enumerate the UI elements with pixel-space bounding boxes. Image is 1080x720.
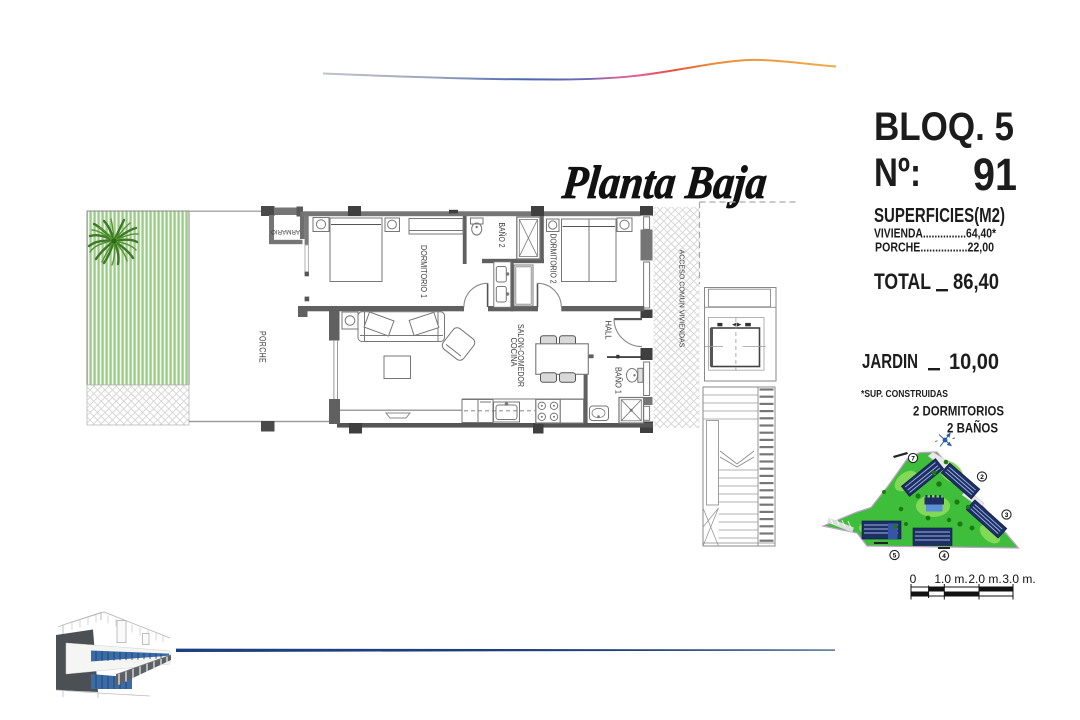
svg-text:ARMARIO: ARMARIO: [271, 228, 300, 235]
svg-text:BAÑO 2: BAÑO 2: [497, 223, 506, 248]
svg-text:COCINA: COCINA: [509, 338, 518, 368]
svg-text:2 DORMITORIOS: 2 DORMITORIOS: [913, 403, 1004, 419]
svg-text:91: 91: [973, 149, 1017, 200]
svg-text:5: 5: [893, 552, 897, 559]
svg-text:PORCHE: PORCHE: [258, 331, 268, 363]
svg-text:SUPERFICIES(M2): SUPERFICIES(M2): [874, 205, 1005, 227]
svg-text:0: 0: [910, 572, 917, 586]
svg-text:4: 4: [942, 553, 946, 560]
svg-text:2 BAÑOS: 2 BAÑOS: [947, 419, 998, 436]
svg-text:VIVIENDA...............64,40*: VIVIENDA...............64,40*: [874, 226, 997, 241]
svg-text:2.0 m.: 2.0 m.: [968, 572, 1001, 586]
svg-text:Nº:: Nº:: [874, 151, 921, 195]
svg-text:2: 2: [980, 474, 984, 481]
svg-text:3: 3: [1005, 512, 1009, 519]
svg-text:7: 7: [911, 455, 915, 462]
svg-text:JARDIN: JARDIN: [862, 351, 918, 373]
svg-text:HALL: HALL: [604, 321, 613, 341]
svg-text:BAÑO 1: BAÑO 1: [614, 367, 624, 394]
svg-text:PORCHE................22,00: PORCHE................22,00: [875, 240, 994, 255]
svg-text:TOTAL: TOTAL: [874, 269, 931, 294]
svg-text:86,40: 86,40: [953, 269, 999, 294]
svg-text:Planta Baja: Planta Baja: [559, 157, 769, 209]
svg-text:DORMITORIO 2: DORMITORIO 2: [549, 234, 558, 284]
svg-text:BLOQ. 5: BLOQ. 5: [874, 105, 1014, 149]
svg-text:ACCESO COMUN VIVIENDAS: ACCESO COMUN VIVIENDAS: [678, 250, 687, 348]
svg-text:DORMITORIO 1: DORMITORIO 1: [419, 245, 428, 298]
svg-text:*SUP. CONSTRUIDAS: *SUP. CONSTRUIDAS: [861, 389, 948, 400]
svg-text:10,00: 10,00: [949, 349, 999, 374]
svg-text:1.0 m.: 1.0 m.: [934, 572, 967, 586]
svg-text:3.0 m.: 3.0 m.: [1002, 572, 1035, 586]
